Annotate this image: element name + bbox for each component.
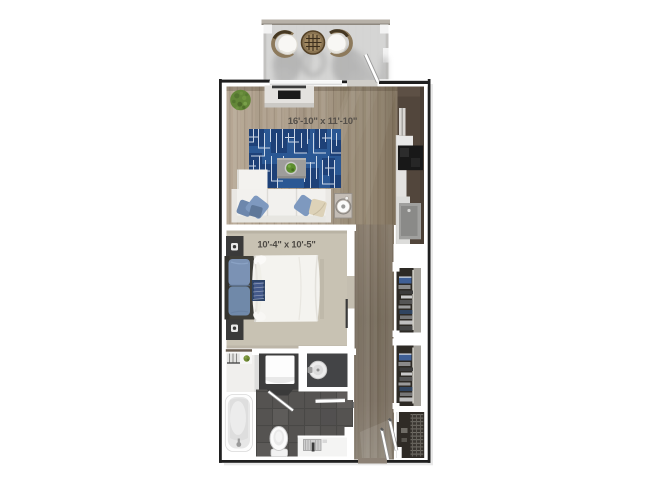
svg-text:16'-10" x 11'-10": 16'-10" x 11'-10" [288, 116, 357, 127]
svg-text:10'-4" x 10'-5": 10'-4" x 10'-5" [257, 239, 315, 250]
